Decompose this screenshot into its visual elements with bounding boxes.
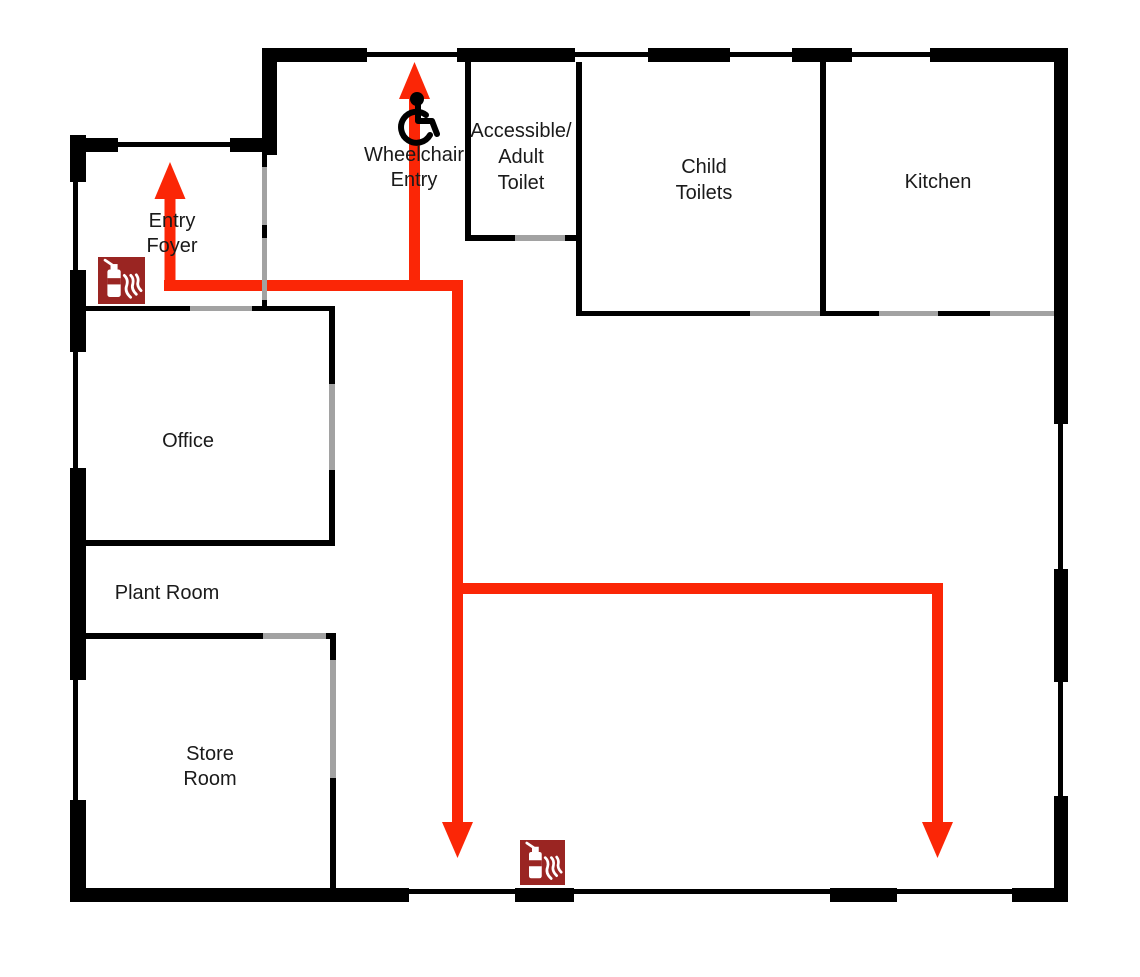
wall-segment — [1054, 569, 1068, 682]
fire-extinguisher-icon — [98, 257, 145, 304]
room-label-store-room: Store — [186, 743, 234, 765]
door-opening — [990, 311, 1054, 316]
wall-segment — [329, 306, 335, 384]
wall-segment — [582, 311, 750, 316]
wall-segment — [1054, 48, 1068, 424]
wall-segment — [515, 888, 574, 902]
wall-segment — [465, 62, 471, 240]
wall-segment — [826, 311, 879, 316]
room-label-office: Office — [162, 430, 214, 452]
wall-segment — [330, 778, 336, 902]
wall-lintel — [852, 52, 930, 57]
room-label-accessible-adult-toilet: Toilet — [498, 172, 545, 194]
wall-segment — [70, 888, 409, 902]
wall-segment — [938, 311, 990, 316]
room-label-store-room: Room — [183, 768, 236, 790]
door-opening — [515, 235, 565, 241]
wall-segment — [648, 48, 730, 62]
wall-segment — [465, 235, 515, 241]
wall-segment — [70, 270, 86, 352]
room-label-wheelchair-entry: Wheelchair — [364, 144, 464, 166]
wall-lintel — [897, 889, 1012, 894]
wall-lintel — [73, 352, 78, 468]
wall-segment — [329, 470, 335, 546]
door-opening — [262, 167, 267, 225]
room-label-accessible-adult-toilet: Accessible/ — [470, 120, 572, 142]
door-opening — [262, 238, 267, 300]
wall-segment — [830, 888, 897, 902]
wall-segment — [262, 225, 267, 238]
door-opening — [330, 660, 336, 778]
wall-segment — [86, 306, 190, 311]
wall-lintel — [118, 142, 230, 147]
wall-segment — [792, 48, 852, 62]
wall-segment — [565, 235, 576, 241]
room-label-child-toilets: Toilets — [676, 182, 733, 204]
room-label-accessible-adult-toilet: Adult — [498, 146, 544, 168]
wall-lintel — [1058, 682, 1063, 796]
door-opening — [750, 311, 820, 316]
room-label-kitchen: Kitchen — [905, 171, 972, 193]
floor-plan-page: Entry Foyer Wheelchair Entry Accessible/… — [0, 0, 1140, 977]
wall-segment — [262, 48, 367, 62]
wall-segment — [330, 633, 336, 660]
room-label-wheelchair-entry: Entry — [391, 169, 438, 191]
wall-lintel — [575, 52, 648, 57]
wall-lintel — [73, 680, 78, 800]
fire-extinguisher-icon — [520, 840, 565, 885]
wall-segment — [252, 306, 335, 311]
wall-segment — [86, 540, 335, 546]
wall-segment — [70, 138, 118, 152]
wall-segment — [930, 48, 1068, 62]
door-opening — [879, 311, 938, 316]
wall-lintel — [367, 52, 457, 57]
door-opening — [263, 633, 326, 639]
wall-segment — [1012, 888, 1068, 902]
wall-segment — [230, 138, 277, 152]
wall-segment — [262, 155, 267, 167]
wall-segment — [86, 633, 263, 639]
wall-segment — [576, 62, 582, 316]
room-label-entry-foyer: Entry — [149, 210, 196, 232]
room-label-entry-foyer: Foyer — [146, 235, 197, 257]
room-label-plant-room: Plant Room — [115, 582, 220, 604]
room-label-child-toilets: Child — [681, 156, 727, 178]
wall-lintel — [1058, 424, 1063, 569]
wall-segment — [457, 48, 575, 62]
wall-lintel — [409, 889, 515, 894]
wall-segment — [1054, 796, 1068, 902]
wall-lintel — [73, 182, 78, 270]
wall-segment — [820, 62, 826, 316]
wall-segment — [70, 468, 86, 680]
wall-lintel — [730, 52, 792, 57]
door-opening — [329, 384, 335, 470]
wall-segment — [70, 800, 86, 902]
wall-lintel — [574, 889, 830, 894]
floor-plan-svg: Entry Foyer Wheelchair Entry Accessible/… — [0, 0, 1140, 977]
door-opening — [190, 306, 252, 311]
